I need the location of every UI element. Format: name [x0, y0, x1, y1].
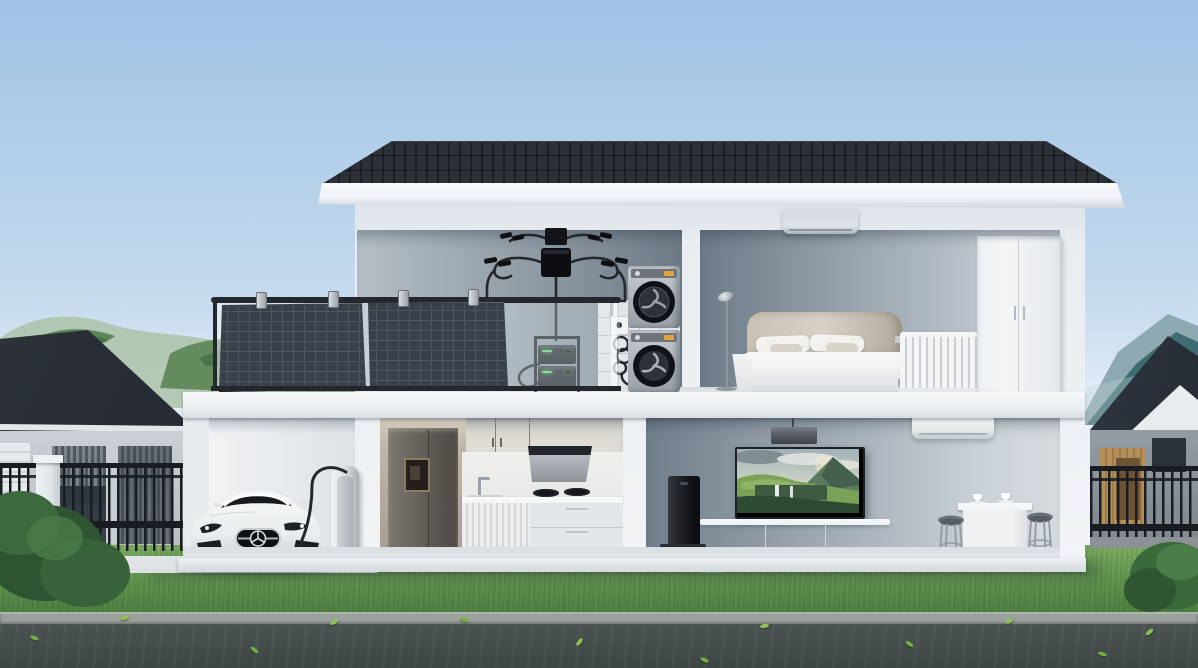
- ground-floor-strip: [183, 547, 1060, 558]
- gas-burner: [564, 488, 590, 496]
- glass-edge: [611, 302, 617, 390]
- dryer: [628, 266, 680, 328]
- cabinet-handle: [492, 438, 494, 447]
- washer-door: [632, 280, 676, 324]
- coffee-cup: [998, 493, 1014, 503]
- washer-door: [632, 344, 676, 388]
- garage-ceiling-shadow: [209, 418, 359, 434]
- tv: [735, 447, 865, 519]
- drawer-pull: [566, 531, 588, 533]
- washer-dryer-stack: [628, 264, 680, 394]
- wardrobe-handle: [1014, 306, 1016, 320]
- panel-mount-hook: [328, 291, 339, 308]
- wardrobe-seam: [1018, 238, 1019, 391]
- solar-panel: [217, 302, 368, 392]
- floor-slab: [183, 392, 1085, 418]
- display: [664, 271, 674, 276]
- coffee-cup: [970, 494, 986, 504]
- control-panel: [631, 269, 677, 278]
- panel-mount-hook: [468, 289, 479, 306]
- radiator: [900, 332, 978, 392]
- gas-burner: [533, 489, 559, 497]
- knob: [635, 335, 640, 340]
- radiator-valve: [895, 336, 900, 343]
- floor-lamp-base: [716, 387, 737, 391]
- road-texture: [0, 624, 1198, 668]
- vacuum-dock: [668, 476, 700, 546]
- control-panel: [631, 333, 677, 342]
- wardrobe-handle: [1023, 306, 1025, 320]
- panel-mount-hook: [398, 290, 409, 307]
- faucet: [478, 477, 481, 497]
- railing-post: [213, 298, 217, 390]
- bed-base: [752, 378, 898, 392]
- pendant-light: [771, 427, 817, 444]
- roof: [318, 140, 1124, 186]
- display: [664, 335, 674, 340]
- drawer-pull: [566, 508, 588, 510]
- knob: [635, 271, 640, 276]
- bush-left: [0, 478, 170, 623]
- house-plinth: [178, 558, 1086, 572]
- range-hood: [528, 446, 592, 482]
- tv-screen-landscape: [737, 449, 859, 513]
- railing-bottom: [211, 386, 621, 391]
- washer: [628, 330, 680, 392]
- bed-duvet: [742, 352, 906, 379]
- scene: [0, 0, 1198, 668]
- bush-right: [1122, 528, 1198, 620]
- fence-pillar-cap: [33, 455, 63, 463]
- water-dispenser: [404, 458, 430, 492]
- solar-panel: [366, 301, 510, 390]
- railing-top: [211, 297, 621, 303]
- floor-lamp: [726, 298, 728, 389]
- air-conditioner: [783, 208, 858, 234]
- wardrobe: [977, 236, 1061, 393]
- high-table-top: [958, 503, 1032, 510]
- cabinet-handle: [500, 438, 502, 447]
- panel-mount-hook: [256, 292, 267, 309]
